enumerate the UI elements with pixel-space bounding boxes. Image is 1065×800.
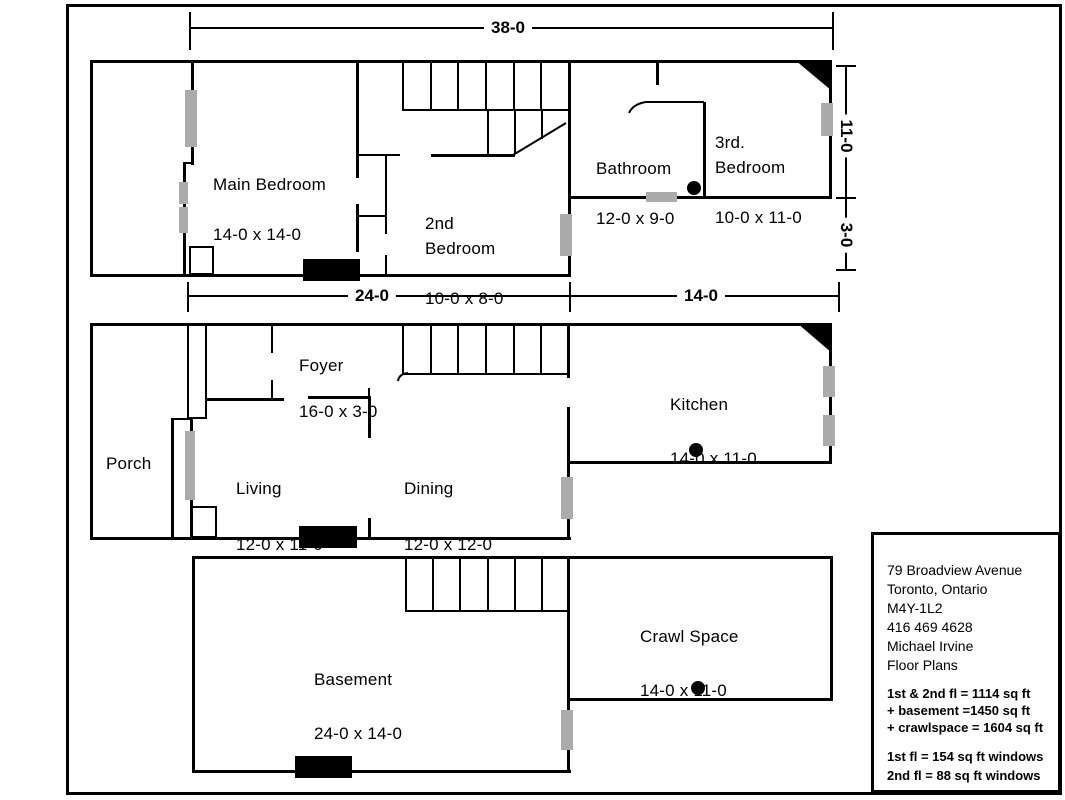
owner-name: Michael Irvine [887,637,1052,656]
stair-handrail-curve [398,373,408,381]
bathroom-door-swing [629,102,704,113]
window-area-line: 2nd fl = 88 sq ft windows [887,766,1052,785]
address-line: Toronto, Ontario [887,580,1052,599]
address-line: M4Y-1L2 [887,599,1052,618]
area-line: 1st & 2nd fl = 1114 sq ft [887,685,1052,702]
spacer [887,675,1052,685]
area-line: + basement =1450 sq ft [887,702,1052,719]
phone-number: 416 469 4628 [887,618,1052,637]
spacer [887,736,1052,747]
window-area-line: 1st fl = 154 sq ft windows [887,747,1052,766]
floor-plan-page: Main Bedroom 14-0 x 14-0 2nd Bedroom 10-… [0,0,1065,800]
stair-break-line [513,123,566,155]
info-box: 79 Broadview Avenue Toronto, Ontario M4Y… [871,532,1061,793]
drawing-title: Floor Plans [887,656,1052,675]
area-line: + crawlspace = 1604 sq ft [887,719,1052,736]
address-line: 79 Broadview Avenue [887,561,1052,580]
